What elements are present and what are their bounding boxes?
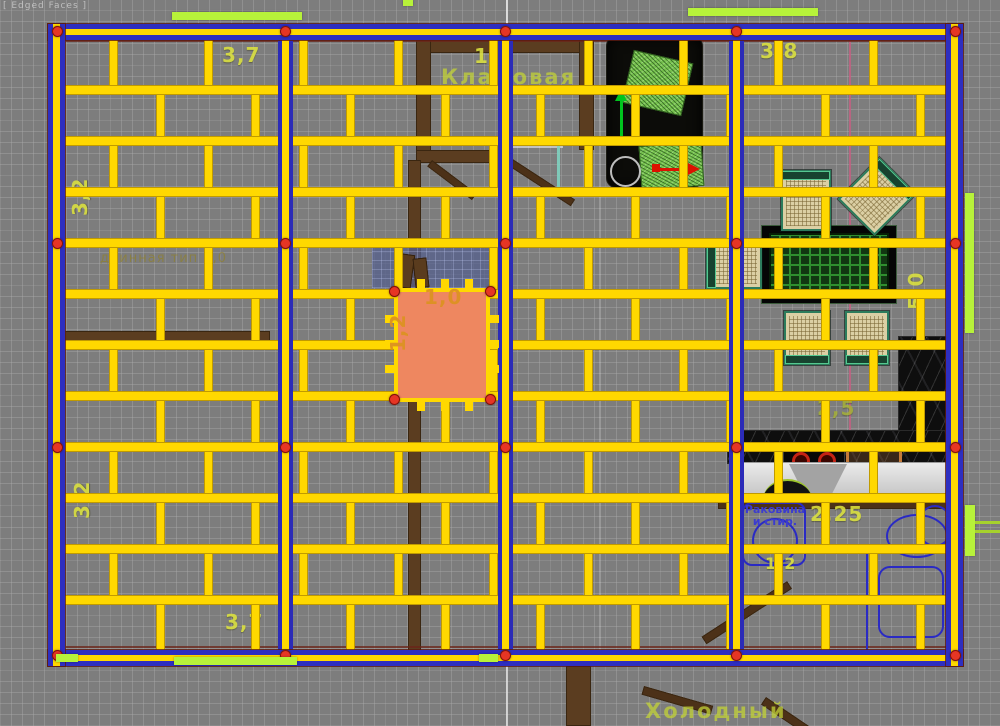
viewport-chrome: [ Edged Faces ]: [0, 0, 1000, 726]
viewport-shading-label[interactable]: [ Edged Faces ]: [3, 1, 87, 11]
viewport-3d-top-view[interactable]: Раковина и стир. 3,71,8Кладовая3,83,23,2…: [0, 0, 1000, 726]
